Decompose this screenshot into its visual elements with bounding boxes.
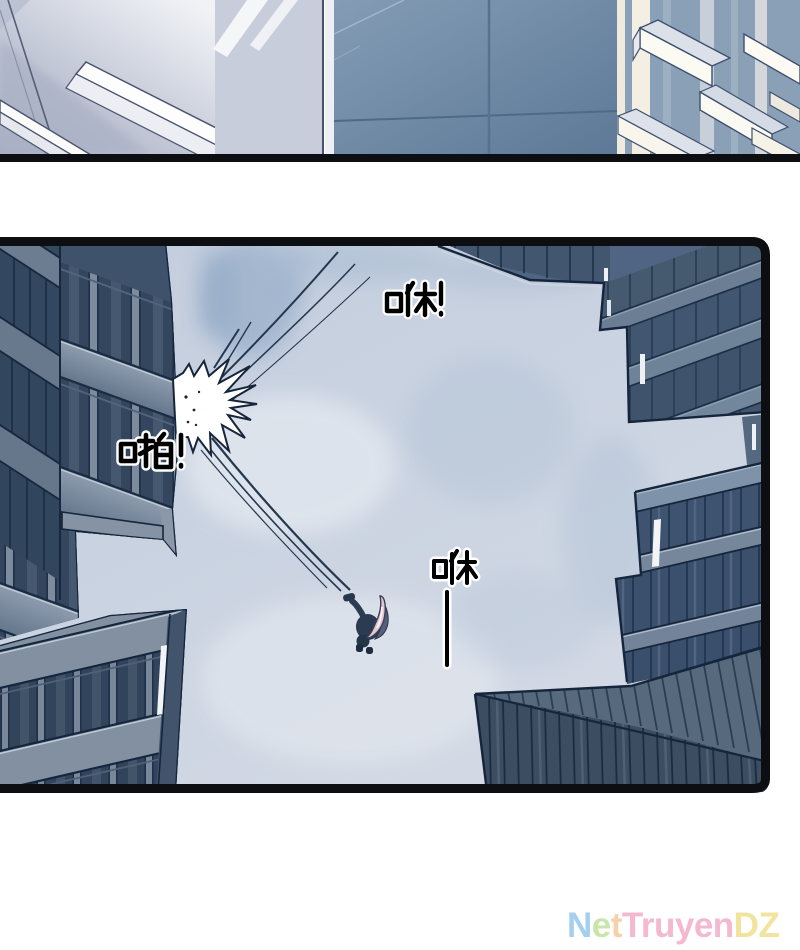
- svg-text:NetTruyenDZ: NetTruyenDZ: [567, 906, 779, 945]
